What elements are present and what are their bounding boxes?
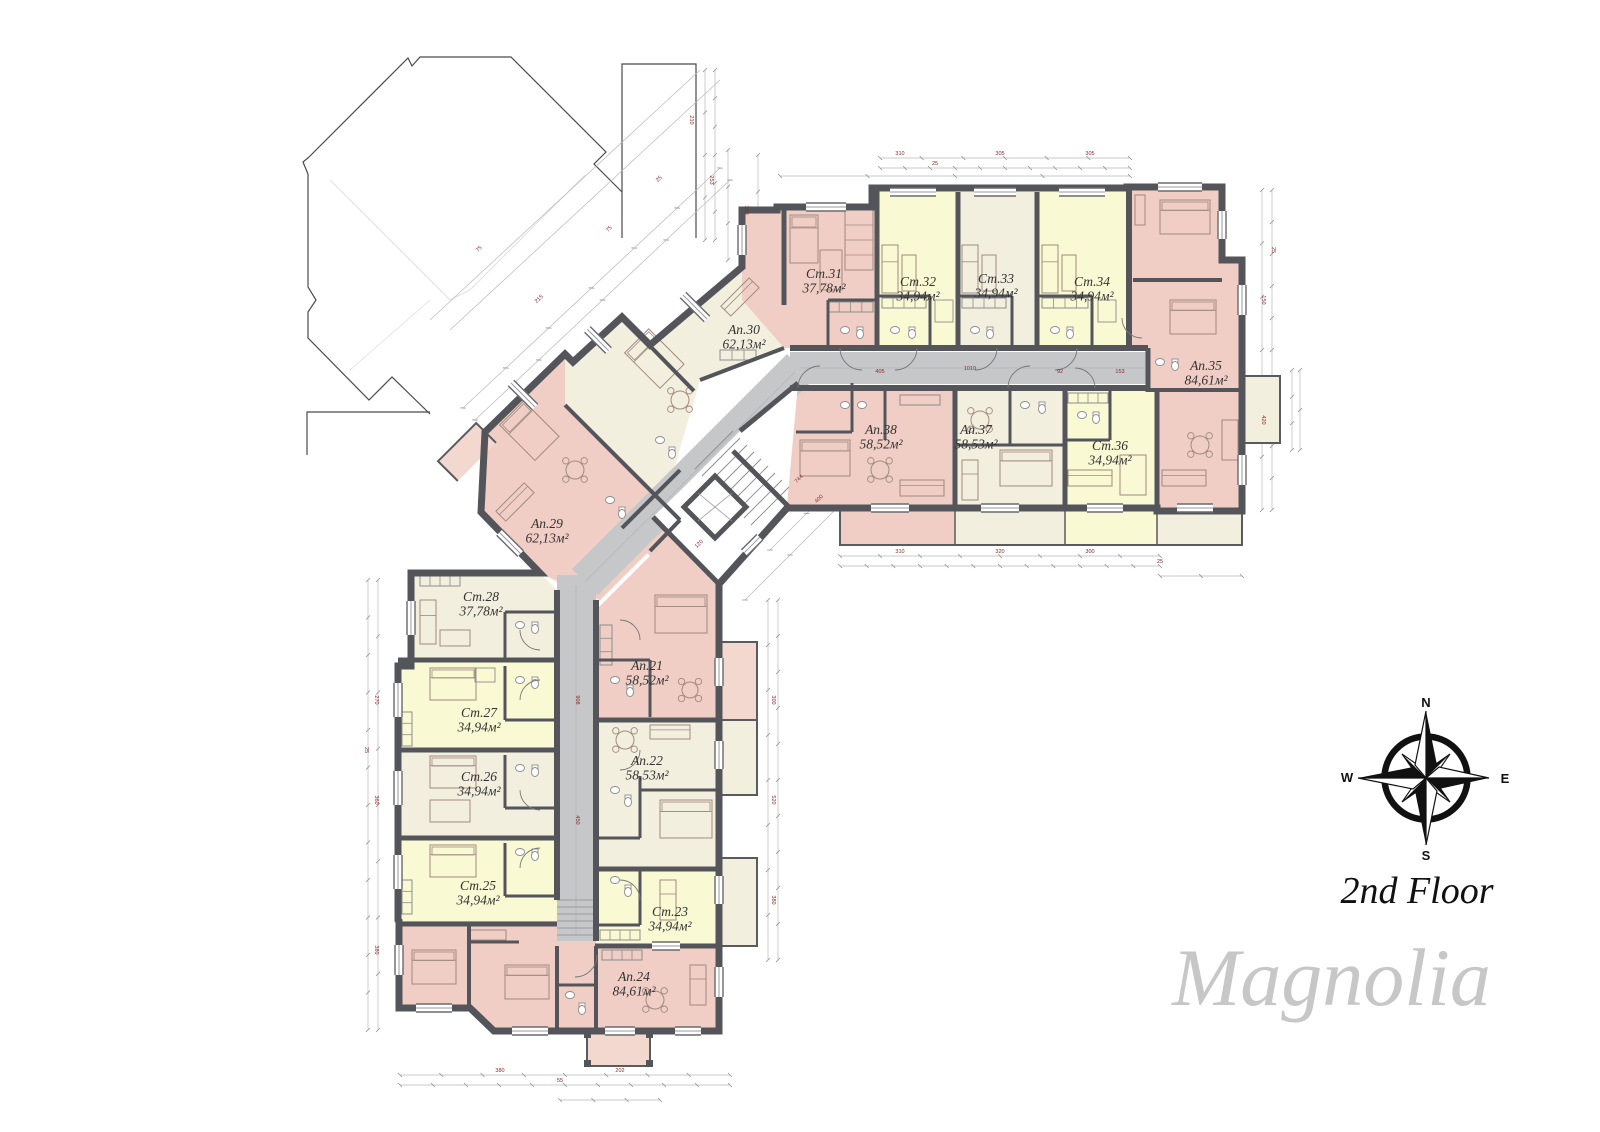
svg-text:34,94м²: 34,94м² [647, 919, 692, 934]
svg-text:520: 520 [770, 795, 776, 804]
svg-text:34,94м²: 34,94м² [1087, 453, 1132, 468]
svg-text:450: 450 [574, 815, 580, 824]
svg-text:Magnolia: Magnolia [1171, 932, 1491, 1023]
svg-text:34,94м²: 34,94м² [455, 893, 500, 908]
svg-text:25: 25 [363, 747, 369, 753]
svg-text:305: 305 [995, 151, 1004, 157]
svg-text:310: 310 [895, 549, 904, 555]
svg-text:34,94м²: 34,94м² [973, 286, 1018, 301]
svg-text:380: 380 [373, 945, 379, 954]
svg-text:270: 270 [373, 695, 379, 704]
svg-text:84,61м²: 84,61м² [1184, 373, 1228, 388]
svg-text:300: 300 [1085, 549, 1094, 555]
svg-text:Ст.33: Ст.33 [978, 271, 1014, 286]
svg-text:92: 92 [1057, 369, 1063, 375]
svg-text:Ст.28: Ст.28 [463, 589, 499, 604]
svg-text:62,13м²: 62,13м² [722, 337, 766, 352]
svg-text:908: 908 [574, 695, 580, 704]
svg-text:58,53м²: 58,53м² [625, 768, 669, 783]
svg-text:2nd Floor: 2nd Floor [1340, 870, 1493, 912]
svg-text:Ст.31: Ст.31 [806, 266, 842, 281]
svg-text:Ап.38: Ап.38 [864, 422, 897, 437]
svg-text:Ап.29: Ап.29 [530, 516, 563, 531]
svg-text:58,52м²: 58,52м² [625, 673, 669, 688]
svg-text:Ап.30: Ап.30 [727, 322, 760, 337]
svg-text:380: 380 [495, 1068, 504, 1074]
svg-text:310: 310 [895, 151, 904, 157]
svg-text:210: 210 [688, 115, 694, 124]
svg-text:Ст.34: Ст.34 [1074, 274, 1110, 289]
svg-text:Ап.21: Ап.21 [630, 658, 663, 673]
svg-text:34,94м²: 34,94м² [456, 784, 501, 799]
svg-text:Ап.24: Ап.24 [617, 969, 650, 984]
svg-text:Ст.23: Ст.23 [652, 904, 688, 919]
svg-text:S: S [1422, 848, 1431, 863]
svg-text:300: 300 [770, 695, 776, 704]
svg-text:Ст.27: Ст.27 [461, 705, 498, 720]
svg-text:Ст.36: Ст.36 [1092, 438, 1128, 453]
svg-text:Ап.22: Ап.22 [630, 753, 663, 768]
svg-text:34,94м²: 34,94м² [1069, 289, 1114, 304]
svg-text:1010: 1010 [964, 366, 976, 372]
svg-text:360: 360 [373, 795, 379, 804]
svg-text:58,52м²: 58,52м² [859, 437, 903, 452]
svg-text:150: 150 [1260, 295, 1266, 304]
svg-text:25: 25 [1157, 559, 1163, 565]
svg-text:37,78м²: 37,78м² [801, 281, 846, 296]
svg-text:34,94м²: 34,94м² [456, 720, 501, 735]
svg-text:58,53м²: 58,53м² [954, 437, 998, 452]
svg-text:202: 202 [615, 1068, 624, 1074]
svg-text:Ст.32: Ст.32 [900, 274, 936, 289]
svg-text:405: 405 [875, 369, 884, 375]
svg-text:Ст.25: Ст.25 [460, 878, 496, 893]
svg-text:25: 25 [1270, 247, 1276, 253]
svg-text:380: 380 [770, 895, 776, 904]
svg-text:25: 25 [932, 161, 938, 167]
svg-text:305: 305 [1085, 151, 1094, 157]
svg-text:62,13м²: 62,13м² [525, 531, 569, 546]
svg-text:320: 320 [995, 549, 1004, 555]
svg-text:55: 55 [557, 1078, 563, 1084]
svg-text:84,61м²: 84,61м² [612, 984, 656, 999]
svg-text:Ст.26: Ст.26 [461, 769, 497, 784]
svg-text:Ап.35: Ап.35 [1189, 358, 1222, 373]
svg-text:N: N [1421, 695, 1430, 710]
svg-text:34,94м²: 34,94м² [895, 289, 940, 304]
svg-text:153: 153 [1115, 369, 1124, 375]
svg-text:150: 150 [743, 205, 749, 214]
svg-text:Ап.37: Ап.37 [959, 422, 993, 437]
svg-text:253: 253 [708, 175, 714, 184]
svg-text:W: W [1341, 770, 1354, 785]
svg-text:420: 420 [1260, 415, 1266, 424]
svg-text:37,78м²: 37,78м² [458, 604, 503, 619]
svg-text:E: E [1501, 771, 1510, 786]
